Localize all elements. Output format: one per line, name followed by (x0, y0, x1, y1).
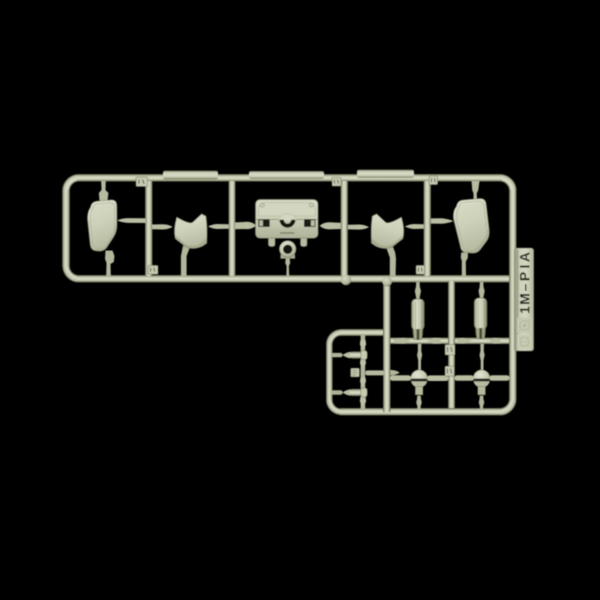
svg-text:–: – (516, 283, 532, 291)
svg-text:1: 1 (516, 306, 532, 314)
svg-text:P: P (516, 272, 532, 281)
svg-text:I: I (516, 265, 532, 269)
svg-text:A: A (516, 252, 532, 262)
svg-text:M: M (516, 293, 532, 305)
